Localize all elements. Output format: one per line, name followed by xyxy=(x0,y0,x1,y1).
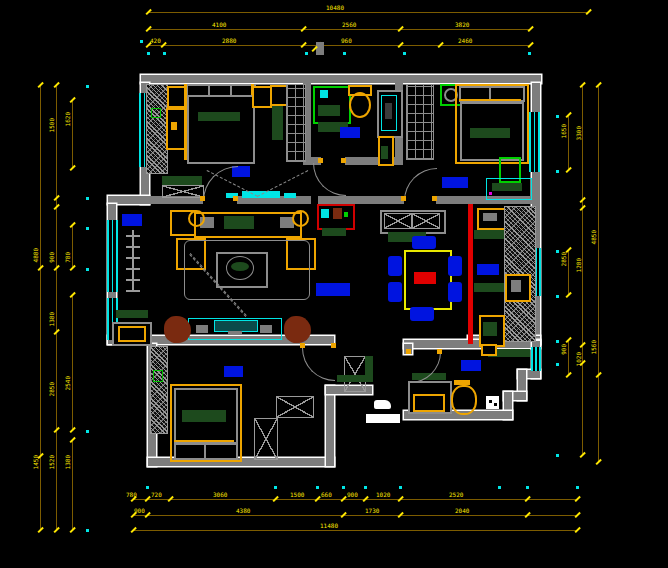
dot xyxy=(147,52,150,55)
plant-leaves xyxy=(231,262,249,271)
dim-label: 660 xyxy=(321,492,332,498)
door-hinge xyxy=(233,196,238,201)
shelf-green xyxy=(116,310,148,318)
floor-drain xyxy=(486,396,499,409)
dot xyxy=(86,268,89,271)
dim-label: 1500 xyxy=(290,492,304,498)
dot xyxy=(140,40,143,43)
wardrobe-x-horizontal xyxy=(276,396,314,418)
drain-dot xyxy=(494,403,497,406)
door-hinge xyxy=(341,158,346,163)
tick xyxy=(69,265,75,271)
wall-top xyxy=(141,75,541,83)
dot xyxy=(556,363,559,366)
dim-label: 2850 xyxy=(49,382,55,396)
tick xyxy=(574,527,580,533)
dot xyxy=(403,52,406,55)
room-label-marker xyxy=(461,360,481,371)
door-arc-bath1 xyxy=(313,163,346,196)
dim-label: 900 xyxy=(49,252,55,263)
closet-hatched xyxy=(146,84,168,174)
closet-hatched xyxy=(150,346,168,434)
door-hinge xyxy=(406,349,411,354)
bed3-pillow xyxy=(182,410,226,422)
dim-label: 4850 xyxy=(591,230,597,244)
room-label-marker xyxy=(477,264,499,275)
dim-line xyxy=(133,515,578,516)
dim-label: 1020 xyxy=(376,492,390,498)
entry-threshold xyxy=(366,414,400,423)
door-arc-bedroom3 xyxy=(302,348,335,381)
dot xyxy=(556,454,559,457)
dim-label: 4880 xyxy=(33,248,39,262)
dim-label: 10480 xyxy=(326,5,344,11)
coat-rack xyxy=(126,230,140,292)
dim-label: 11480 xyxy=(320,523,338,529)
dim-label: 2880 xyxy=(222,38,236,44)
dim-label: 2850 xyxy=(561,252,567,266)
dim-label: 2540 xyxy=(65,376,71,390)
dot xyxy=(528,52,531,55)
dot xyxy=(556,115,559,118)
tick xyxy=(574,496,580,502)
dim-label: 1560 xyxy=(591,340,597,354)
dining-chair xyxy=(448,282,462,302)
room-label-marker xyxy=(122,214,142,226)
dot xyxy=(274,486,277,489)
desk-top xyxy=(492,183,522,191)
tick xyxy=(69,427,75,433)
dim-line xyxy=(568,250,569,295)
counter-green xyxy=(474,283,504,292)
door-hinge xyxy=(401,196,406,201)
sofa-lamp xyxy=(188,210,205,227)
tick xyxy=(579,452,585,458)
dim-line xyxy=(72,225,73,268)
bed1-body xyxy=(187,95,255,164)
dot xyxy=(146,486,149,489)
side-table2-top xyxy=(118,326,146,342)
entry-symbol xyxy=(374,400,391,409)
tick xyxy=(565,292,571,298)
dim-line xyxy=(148,12,588,13)
ceiling-line xyxy=(257,170,308,197)
wardrobe-x-vertical xyxy=(254,418,278,460)
dim-label: 1380 xyxy=(49,312,55,326)
dim-label: 2520 xyxy=(449,492,463,498)
toilet2-bowl xyxy=(451,385,477,415)
room-label-marker xyxy=(224,366,243,377)
dot xyxy=(556,170,559,173)
bench-base xyxy=(162,185,204,198)
door-hinge xyxy=(200,196,205,201)
wall-bedroom3-right xyxy=(326,386,334,466)
dim-line xyxy=(72,295,73,430)
floor-plant-left xyxy=(164,316,191,343)
wall-bath-bottom-b xyxy=(345,157,403,165)
dim-line xyxy=(568,115,569,170)
tick xyxy=(53,527,59,533)
buffet-door xyxy=(412,213,440,229)
counter-green xyxy=(474,230,504,239)
dim-label: 2040 xyxy=(455,508,469,514)
window-living-left-upper xyxy=(107,220,118,292)
bed3-canopy xyxy=(174,440,234,442)
dot xyxy=(86,197,89,200)
tick xyxy=(585,9,591,15)
table-centerpiece xyxy=(414,272,436,284)
window-bath2-right xyxy=(531,347,541,371)
cabinet-shelf xyxy=(381,146,388,159)
stove-grate xyxy=(483,213,497,221)
dot xyxy=(526,486,529,489)
tick xyxy=(69,527,75,533)
deco-item xyxy=(321,209,329,218)
door-hinge xyxy=(432,196,437,201)
shower-head xyxy=(320,90,328,98)
tick xyxy=(527,42,533,48)
tick xyxy=(527,26,533,32)
dot xyxy=(163,52,166,55)
tick xyxy=(595,459,601,465)
dim-line xyxy=(72,100,73,168)
dim-label: 3300 xyxy=(576,126,582,140)
door-hinge xyxy=(318,158,323,163)
deco-item xyxy=(344,212,348,217)
dining-chair xyxy=(410,307,434,321)
dim-line xyxy=(148,45,530,46)
dot xyxy=(498,486,501,489)
dim-line xyxy=(56,85,57,530)
bench-cushion xyxy=(162,176,202,185)
hall-wardrobe-grid xyxy=(406,84,434,160)
dot xyxy=(86,529,89,532)
toilet-bowl xyxy=(349,92,371,118)
dim-line xyxy=(568,340,569,375)
dim-label: 720 xyxy=(151,492,162,498)
wash-basin2 xyxy=(413,394,445,412)
door-hinge xyxy=(300,343,305,348)
wall-bedroom2-bottom-a xyxy=(318,196,404,204)
sink-basin xyxy=(511,280,521,292)
dot xyxy=(556,295,559,298)
dim-line xyxy=(582,85,583,455)
sofa-cushion xyxy=(224,216,254,229)
dot xyxy=(556,250,559,253)
door-hinge xyxy=(331,343,336,348)
buffet-door xyxy=(384,213,412,229)
dining-chair xyxy=(448,256,462,276)
dim-label: 2560 xyxy=(342,22,356,28)
door-hinge xyxy=(437,349,442,354)
dim-label: 1620 xyxy=(65,112,71,126)
dot xyxy=(556,340,559,343)
bed3-footboard xyxy=(174,443,238,460)
bed1-pillow xyxy=(198,112,240,121)
window-bedroom2-right xyxy=(529,112,540,172)
tick xyxy=(565,167,571,173)
washer-drum xyxy=(483,322,497,336)
sliding-door-track xyxy=(468,204,473,344)
dot xyxy=(316,486,319,489)
floor-plan-canvas: 10480 4100 2560 3820 420 2880 960 2460 xyxy=(0,0,668,568)
deco-item xyxy=(333,208,342,219)
dim-label: 900 xyxy=(347,492,358,498)
dim-label: 2460 xyxy=(458,38,472,44)
shower-bench xyxy=(318,105,340,116)
dim-label: 4380 xyxy=(236,508,250,514)
dim-label: 1730 xyxy=(365,508,379,514)
shelf-green xyxy=(272,106,283,140)
dim-label: 1380 xyxy=(65,455,71,469)
dot xyxy=(343,52,346,55)
dining-chair xyxy=(388,256,402,276)
dim-label: 1650 xyxy=(561,124,567,138)
dim-line xyxy=(40,85,41,530)
column-marker xyxy=(316,42,324,55)
door-stop xyxy=(481,344,497,356)
room-label-marker xyxy=(442,177,468,188)
dining-chair xyxy=(388,282,402,302)
dim-label: 900 xyxy=(561,344,567,355)
dot xyxy=(342,486,345,489)
dining-chair xyxy=(412,236,436,249)
hall-cabinet-x xyxy=(344,356,366,392)
av-item xyxy=(196,325,208,333)
tick xyxy=(69,165,75,171)
dim-label: 960 xyxy=(341,38,352,44)
dot xyxy=(86,430,89,433)
dim-label: 3820 xyxy=(455,22,469,28)
dim-label: 3060 xyxy=(213,492,227,498)
bed2-pillow xyxy=(470,128,510,138)
bed2-canopy xyxy=(459,99,521,101)
room-label-marker xyxy=(316,283,350,296)
dim-label: 420 xyxy=(150,38,161,44)
tick xyxy=(565,372,571,378)
sofa-lamp xyxy=(292,210,309,227)
floor-plant-right xyxy=(284,316,311,343)
dim-line xyxy=(133,499,578,500)
dot xyxy=(305,52,308,55)
dot xyxy=(576,486,579,489)
drain-dot xyxy=(489,400,492,403)
dot xyxy=(399,486,402,489)
plant-deco xyxy=(153,370,163,382)
dim-label: 780 xyxy=(65,252,71,263)
room-label-marker xyxy=(340,127,360,138)
tick xyxy=(574,512,580,518)
av-item xyxy=(260,325,272,333)
dim-line xyxy=(72,440,73,530)
plant-deco xyxy=(151,108,161,118)
curtain-fixture xyxy=(284,193,296,198)
dim-line xyxy=(133,530,578,531)
desk-dot xyxy=(489,192,492,195)
basin-center xyxy=(385,103,392,119)
dim-line xyxy=(598,85,599,462)
wardrobe-grid xyxy=(286,84,306,162)
dot xyxy=(364,486,367,489)
shelf-green xyxy=(322,228,346,236)
dim-label: 1280 xyxy=(576,258,582,272)
dim-label: 1520 xyxy=(49,455,55,469)
tv-stand xyxy=(228,331,242,335)
dim-label: 1500 xyxy=(49,118,55,132)
dot xyxy=(86,85,89,88)
dim-line xyxy=(148,29,530,30)
shelf-green xyxy=(337,375,369,382)
dim-label: 4100 xyxy=(212,22,226,28)
lamp-icon xyxy=(171,122,177,130)
tick xyxy=(37,527,43,533)
dot xyxy=(86,227,89,230)
